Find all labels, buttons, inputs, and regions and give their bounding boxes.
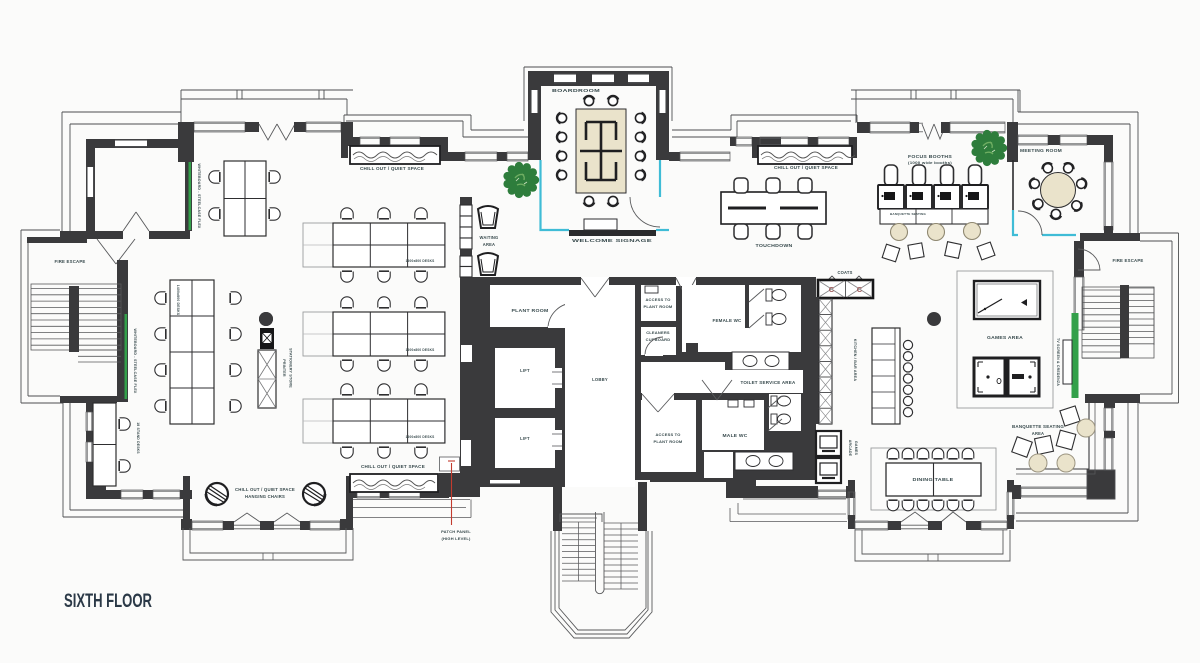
svg-text:CHILL OUT / QUIET SPACE: CHILL OUT / QUIET SPACE <box>235 487 295 492</box>
svg-text:HANGING CHAIRS: HANGING CHAIRS <box>245 494 285 499</box>
svg-text:TOUCHDOWN: TOUCHDOWN <box>756 243 793 248</box>
svg-text:ACCESS TO: ACCESS TO <box>645 297 670 302</box>
svg-text:WELCOME SIGNAGE: WELCOME SIGNAGE <box>572 238 652 243</box>
svg-text:TV SCREEN & CREDENZA: TV SCREEN & CREDENZA <box>1056 338 1060 386</box>
svg-text:CLEANERS: CLEANERS <box>646 330 670 335</box>
svg-text:1600x800 DESKS: 1600x800 DESKS <box>406 259 435 263</box>
svg-text:PLANT ROOM: PLANT ROOM <box>512 308 549 313</box>
svg-text:MEETING ROOM: MEETING ROOM <box>1020 148 1062 153</box>
svg-text:FIRE ESCAPE: FIRE ESCAPE <box>1113 258 1144 263</box>
svg-text:C: C <box>829 285 835 294</box>
svg-text:FEMALE WC: FEMALE WC <box>713 318 742 323</box>
svg-text:LIFT: LIFT <box>520 368 530 373</box>
svg-text:1600x800 DESKS: 1600x800 DESKS <box>406 348 435 352</box>
svg-text:(HIGH LEVEL): (HIGH LEVEL) <box>441 536 471 541</box>
svg-text:1600x800 DESKS: 1600x800 DESKS <box>406 435 435 439</box>
svg-text:BANQUETTE SEATING: BANQUETTE SEATING <box>1012 424 1064 429</box>
svg-text:AREA: AREA <box>483 242 495 247</box>
svg-text:CHILL OUT / QUIET SPACE: CHILL OUT / QUIET SPACE <box>361 464 425 469</box>
svg-text:PRINTER: PRINTER <box>282 359 286 377</box>
svg-text:PLANT ROOM: PLANT ROOM <box>644 304 673 309</box>
svg-text:FIRE ESCAPE: FIRE ESCAPE <box>55 259 86 264</box>
svg-text:KITCHEN / BAR AREA: KITCHEN / BAR AREA <box>853 339 857 382</box>
svg-text:CHILL OUT / QUIET SPACE: CHILL OUT / QUIET SPACE <box>774 165 838 170</box>
svg-text:FOCUS BOOTHS: FOCUS BOOTHS <box>908 154 952 159</box>
svg-text:TOILET SERVICE AREA: TOILET SERVICE AREA <box>741 380 796 385</box>
svg-text:LOBBY: LOBBY <box>592 377 608 382</box>
svg-text:WAITING: WAITING <box>480 235 499 240</box>
svg-text:CHILL OUT / QUIET SPACE: CHILL OUT / QUIET SPACE <box>360 166 424 171</box>
svg-text:1400x800 DESKS: 1400x800 DESKS <box>176 285 180 316</box>
svg-text:BANQUETTE SEATING: BANQUETTE SEATING <box>890 212 926 216</box>
svg-text:AREA: AREA <box>1032 431 1044 436</box>
svg-text:GAMES AREA: GAMES AREA <box>987 335 1023 340</box>
svg-text:WHITEBOARD - STEELCASE FLEX: WHITEBOARD - STEELCASE FLEX <box>197 163 201 228</box>
svg-text:C: C <box>857 285 863 294</box>
svg-text:LIFT: LIFT <box>520 436 530 441</box>
svg-text:COATS: COATS <box>837 270 852 275</box>
svg-text:DINING TABLE: DINING TABLE <box>913 477 954 482</box>
svg-text:MALE WC: MALE WC <box>723 433 748 438</box>
svg-text:ARCADE: ARCADE <box>848 440 852 457</box>
svg-text:GAMES: GAMES <box>854 441 858 456</box>
svg-text:ACCESS TO: ACCESS TO <box>655 432 680 437</box>
svg-text:BOARDROOM: BOARDROOM <box>552 88 600 93</box>
svg-text:SIXTH FLOOR: SIXTH FLOOR <box>64 591 152 612</box>
svg-text:PATCH PANEL: PATCH PANEL <box>441 529 471 534</box>
svg-text:WHITEBOARD - STEELCASE FLEX: WHITEBOARD - STEELCASE FLEX <box>133 328 137 393</box>
svg-text:PLANT ROOM: PLANT ROOM <box>654 439 683 444</box>
svg-text:18 STAND DESKS: 18 STAND DESKS <box>136 422 140 454</box>
svg-text:STATIONERY STORE: STATIONERY STORE <box>289 348 293 388</box>
